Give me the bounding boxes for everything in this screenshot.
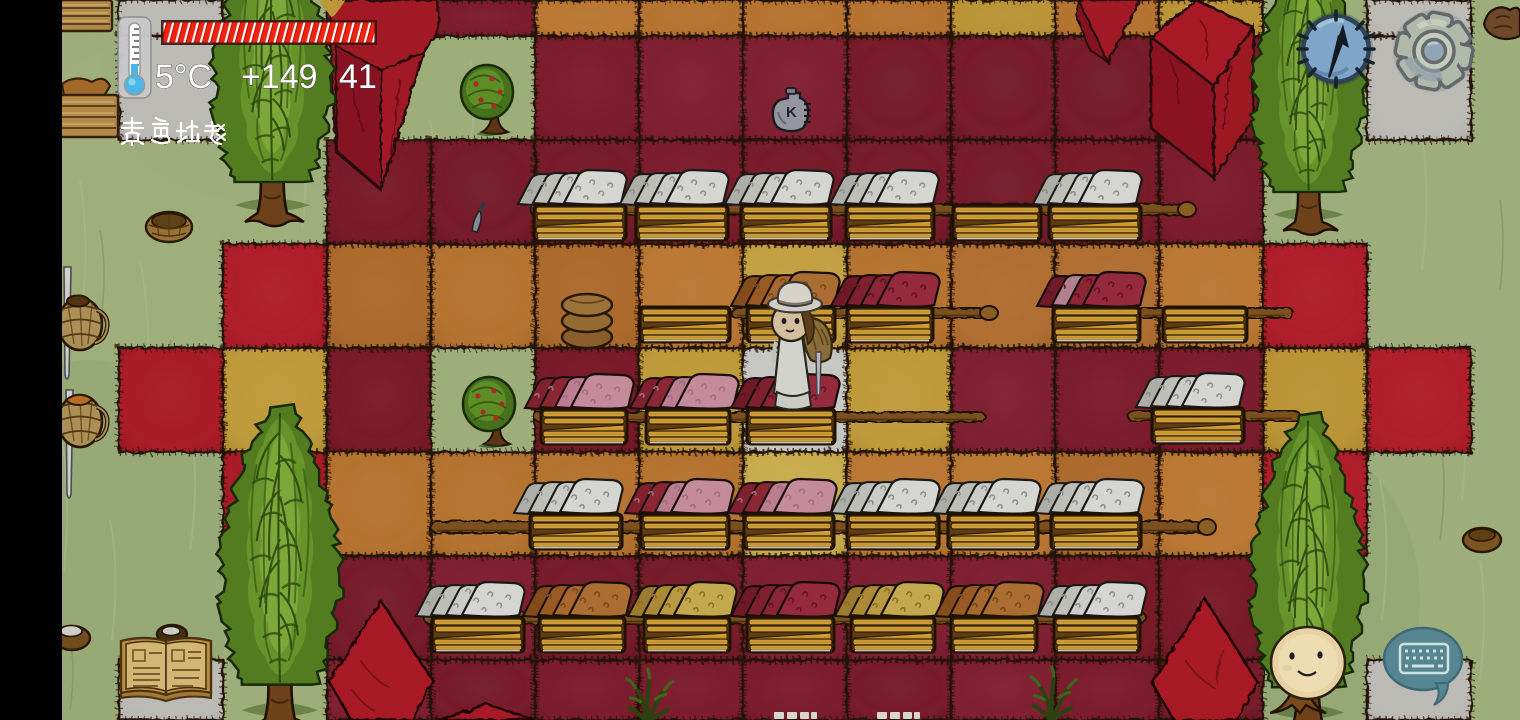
svg-text:41: 41 xyxy=(339,58,377,96)
svg-text:5°C: 5°C xyxy=(155,58,212,96)
svg-text:+149: +149 xyxy=(241,58,318,96)
